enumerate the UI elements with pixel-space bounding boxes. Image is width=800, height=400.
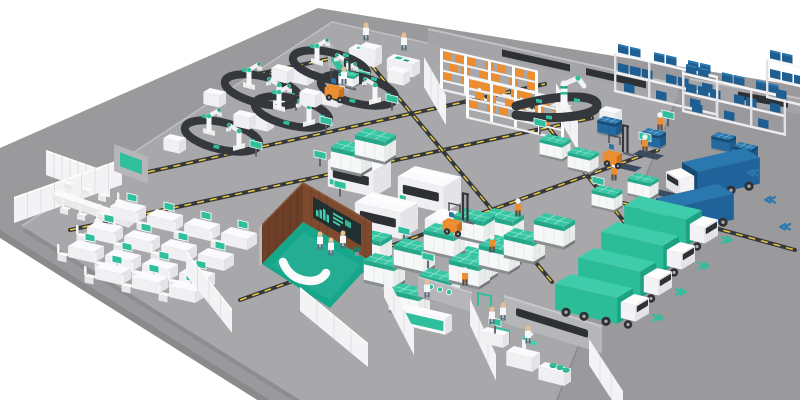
- worker: [515, 198, 521, 216]
- worker: [462, 267, 468, 285]
- receptionist: [424, 280, 430, 298]
- agv-cart-stack: [628, 173, 659, 201]
- factory-scene-stage: [0, 0, 800, 400]
- worker: [500, 303, 506, 321]
- worker: [642, 134, 648, 152]
- worker: [317, 232, 323, 250]
- worker: [489, 307, 495, 325]
- worker: [340, 231, 346, 249]
- agv-cart-stack: [592, 185, 623, 213]
- worker: [363, 23, 369, 41]
- agv-cart-stack: [568, 147, 599, 175]
- worker: [328, 238, 334, 256]
- worker: [489, 234, 495, 252]
- worker: [525, 326, 531, 344]
- worker: [341, 67, 347, 85]
- worker: [657, 112, 663, 130]
- worker: [401, 33, 407, 51]
- agv-cart-stack: [540, 134, 571, 162]
- factory-scene: [0, 0, 800, 400]
